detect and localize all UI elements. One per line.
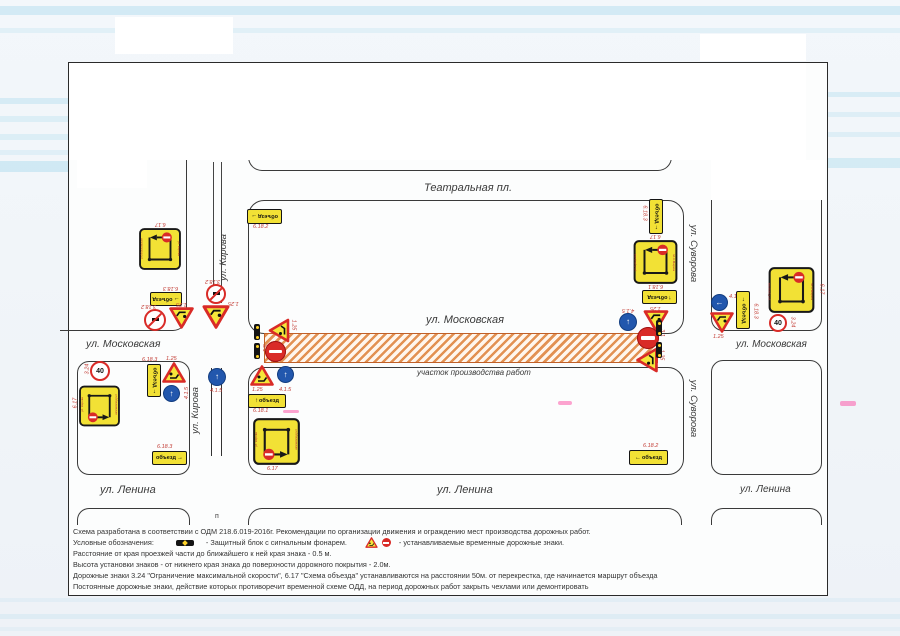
- scheme-street-text: ул.Московская: [294, 429, 297, 449]
- detour-sign: ←объезд: [629, 450, 668, 465]
- scheme-street-text: ул. Кирова: [255, 432, 258, 447]
- direction-sign-4-1-3: ←: [711, 294, 728, 311]
- no-entry-sign-icon: [382, 538, 391, 547]
- arrow-up-icon: ↑: [669, 294, 672, 300]
- whiteout-patch: [69, 63, 806, 160]
- legend-line-3: Расстояние от края проезжей части до бли…: [73, 548, 821, 559]
- scan-artifact-letter: п: [215, 513, 219, 520]
- work-zone-strip: [264, 333, 658, 363]
- whiteout-patch: [711, 160, 825, 200]
- speed-value: 40: [96, 368, 104, 375]
- arrow-down-icon: →: [151, 388, 157, 394]
- arrow-up-icon: ↑: [284, 371, 288, 379]
- sign-code: 6.18.3: [163, 285, 178, 291]
- street-label-teatralnaya: Театральная пл.: [424, 182, 512, 194]
- scan-streak: [0, 627, 900, 631]
- pink-scan-mark: [840, 401, 856, 406]
- sign-code: 6.17: [650, 233, 661, 239]
- speed-limit-sign-3-24: 40: [769, 314, 787, 332]
- street-label-moskovskaya-right: ул. Московская: [736, 339, 807, 350]
- sign-code: 1.25: [713, 334, 724, 340]
- no-turn-sign-3-18-2: [144, 309, 166, 331]
- sign-code: 6.18.3: [753, 303, 759, 318]
- turn-left-arrow-icon: ←: [716, 299, 724, 307]
- sign-code: 1.25: [290, 320, 296, 331]
- direction-sign-4-1-5: ↑: [277, 366, 294, 383]
- detour-sign: объезд→: [247, 209, 282, 224]
- sign-code: 1.25: [176, 301, 187, 307]
- street-label-kirova-lower: ул. Кирова: [190, 387, 201, 434]
- protective-block-post: [656, 342, 662, 358]
- sign-code: 6.18.1: [253, 408, 268, 414]
- sign-code: 6.18.1: [648, 283, 663, 289]
- roadworks-sign-1-25: [269, 319, 290, 343]
- sign-code: 6.18.3: [142, 357, 157, 363]
- direction-sign-4-1-5: ↑: [619, 313, 637, 331]
- detour-scheme-sign-6-17: пл.К.Маркса ул.Суворова: [633, 240, 678, 284]
- sign-code: 6.18.3: [157, 444, 172, 450]
- legend-line-4: Высота установки знаков - от нижнего кра…: [73, 559, 821, 570]
- direction-sign-4-1-5: ↑: [163, 385, 180, 402]
- whiteout-patch: [77, 158, 147, 188]
- protective-block-post: [254, 324, 260, 340]
- block-bottom-left: [77, 508, 190, 525]
- detour-sign: ↑объезд: [642, 290, 677, 304]
- arrow-right-icon: →: [251, 214, 257, 220]
- roadworks-sign-1-25: [710, 312, 734, 333]
- roadworks-sign-1-25: [169, 307, 194, 329]
- street-label-moskovskaya-left: ул. Московская: [86, 338, 160, 350]
- sign-code: 6.18.2: [643, 443, 658, 449]
- no-turn-sign-3-18-2: [206, 284, 226, 304]
- pink-scan-mark: [283, 410, 299, 413]
- protective-block-post: [656, 320, 662, 336]
- scheme-street-text: пл.К.Маркса: [810, 283, 813, 300]
- sign-code: 1.25: [252, 387, 263, 393]
- street-label-suvorova-upper: ул. Суворова: [688, 225, 699, 282]
- pink-scan-mark: [558, 401, 572, 405]
- no-entry-sign-3-1: [265, 341, 286, 362]
- arrow-up-icon: ↑: [626, 318, 630, 326]
- sign-code: 3.1: [261, 344, 267, 352]
- street-label-lenina-left: ул. Ленина: [100, 484, 156, 496]
- work-zone-label: участок производства работ: [417, 368, 531, 377]
- sign-code: 3.24: [789, 317, 795, 328]
- scan-streak: [0, 598, 900, 602]
- whiteout-patch: [115, 17, 233, 54]
- arrow-down-icon: →: [653, 224, 659, 230]
- speed-limit-sign-3-24: 40: [90, 361, 110, 381]
- sign-code: 1.25: [166, 356, 177, 362]
- detour-sign: объезд→: [147, 364, 161, 397]
- roadworks-sign-1-25: [202, 305, 230, 329]
- detour-sign: →объезд: [736, 291, 750, 329]
- sign-code: 6.18.2: [253, 224, 268, 230]
- scheme-street-text: ул. Кирова: [177, 241, 180, 256]
- detour-scheme-sign-6-17: ул. Кирова ул.Московская: [79, 383, 120, 429]
- arrow-down-icon: →: [740, 297, 746, 303]
- block-central-lower: [248, 367, 684, 475]
- legend-signs-text: - устанавливаемые временные дорожные зна…: [399, 537, 564, 548]
- kirova-street-line: [221, 162, 222, 303]
- sign-code: 4.1.5: [279, 387, 291, 393]
- sign-code: 6.17: [155, 221, 166, 227]
- legend-line-1: Схема разработана в соответствии с ОДМ 2…: [73, 526, 821, 537]
- street-label-kirova-upper: ул. Кирова: [218, 234, 229, 281]
- scheme-street-text: пл.К.Маркса: [672, 254, 675, 271]
- sign-code: 6.18.3: [642, 205, 648, 220]
- roadworks-sign-1-25: [636, 347, 658, 373]
- street-label-moskovskaya-center: ул. Московская: [426, 314, 504, 326]
- protective-block-post: [254, 343, 260, 359]
- legend-prefix: Условные обозначения:: [73, 537, 154, 548]
- sign-code: 3.18.2: [141, 303, 156, 309]
- arrow-up-icon: ↑: [255, 398, 258, 404]
- scan-streak: [0, 614, 900, 619]
- sign-code: 6.17: [72, 398, 78, 409]
- street-label-suvorova-lower: ул. Суворова: [688, 380, 699, 437]
- sign-code: 1.25: [650, 305, 661, 311]
- protective-block-icon: [176, 540, 194, 546]
- roadworks-sign-1-25: [162, 362, 186, 383]
- turn-arrow-icon: ↑: [170, 390, 174, 398]
- detour-scheme-sign-6-17: ул. Кирова ул.Московская: [138, 228, 182, 270]
- speed-value: 40: [774, 320, 782, 327]
- legend-line-2: Условные обозначения: - Защитный блок с …: [73, 537, 821, 548]
- detour-scheme-sign-6-17: пл.К.Маркса ул.Суворова: [767, 267, 816, 313]
- arrow-right-icon: →: [177, 455, 183, 461]
- sign-code: 4.1.5: [184, 387, 190, 399]
- detour-sign: ↑объезд: [248, 394, 286, 408]
- street-label-lenina-center: ул. Ленина: [437, 484, 493, 496]
- direction-sign-4-1-5: ↑: [208, 368, 226, 386]
- block-bottom-central: [248, 508, 682, 525]
- detour-sign: объезд→: [152, 451, 187, 465]
- legend-block-text: - Защитный блок с сигнальным фонарем.: [206, 537, 347, 548]
- arrow-left-icon: ←: [635, 455, 641, 461]
- sign-code: 1.25: [228, 300, 239, 306]
- street-label-lenina-right: ул. Ленина: [740, 484, 791, 495]
- whiteout-patch: [700, 34, 806, 61]
- scan-streak: [825, 132, 900, 137]
- scheme-street-text: ул. Кирова: [81, 397, 84, 412]
- scan-streak: [0, 6, 900, 15]
- legend-line-5: Дорожные знаки 3.24 "Ограничение максима…: [73, 570, 821, 581]
- legend-line-6: Постоянные дорожные знаки, действие кото…: [73, 581, 821, 592]
- sign-code: 4.1.5: [210, 388, 222, 394]
- sign-code: 4.1.5: [622, 307, 634, 313]
- sign-code: 6.17: [267, 466, 278, 472]
- detour-sign: объезд→: [649, 199, 663, 234]
- arrow-up-icon: ↑: [215, 373, 219, 381]
- sign-code: 6.17: [818, 284, 824, 295]
- roadworks-sign-1-25: [250, 365, 274, 386]
- scheme-street-text: ул.Московская: [114, 394, 117, 414]
- detour-scheme-sign-6-17: ул. Кирова ул.Московская: [253, 418, 300, 465]
- block-lower-right: [711, 360, 822, 475]
- legend: Схема разработана в соответствии с ОДМ 2…: [73, 526, 821, 592]
- block-bottom-right: [711, 508, 822, 525]
- roadworks-sign-icon: [365, 537, 378, 548]
- sign-code: 3.24: [84, 364, 90, 375]
- sign-code: 3.18.2: [205, 278, 220, 284]
